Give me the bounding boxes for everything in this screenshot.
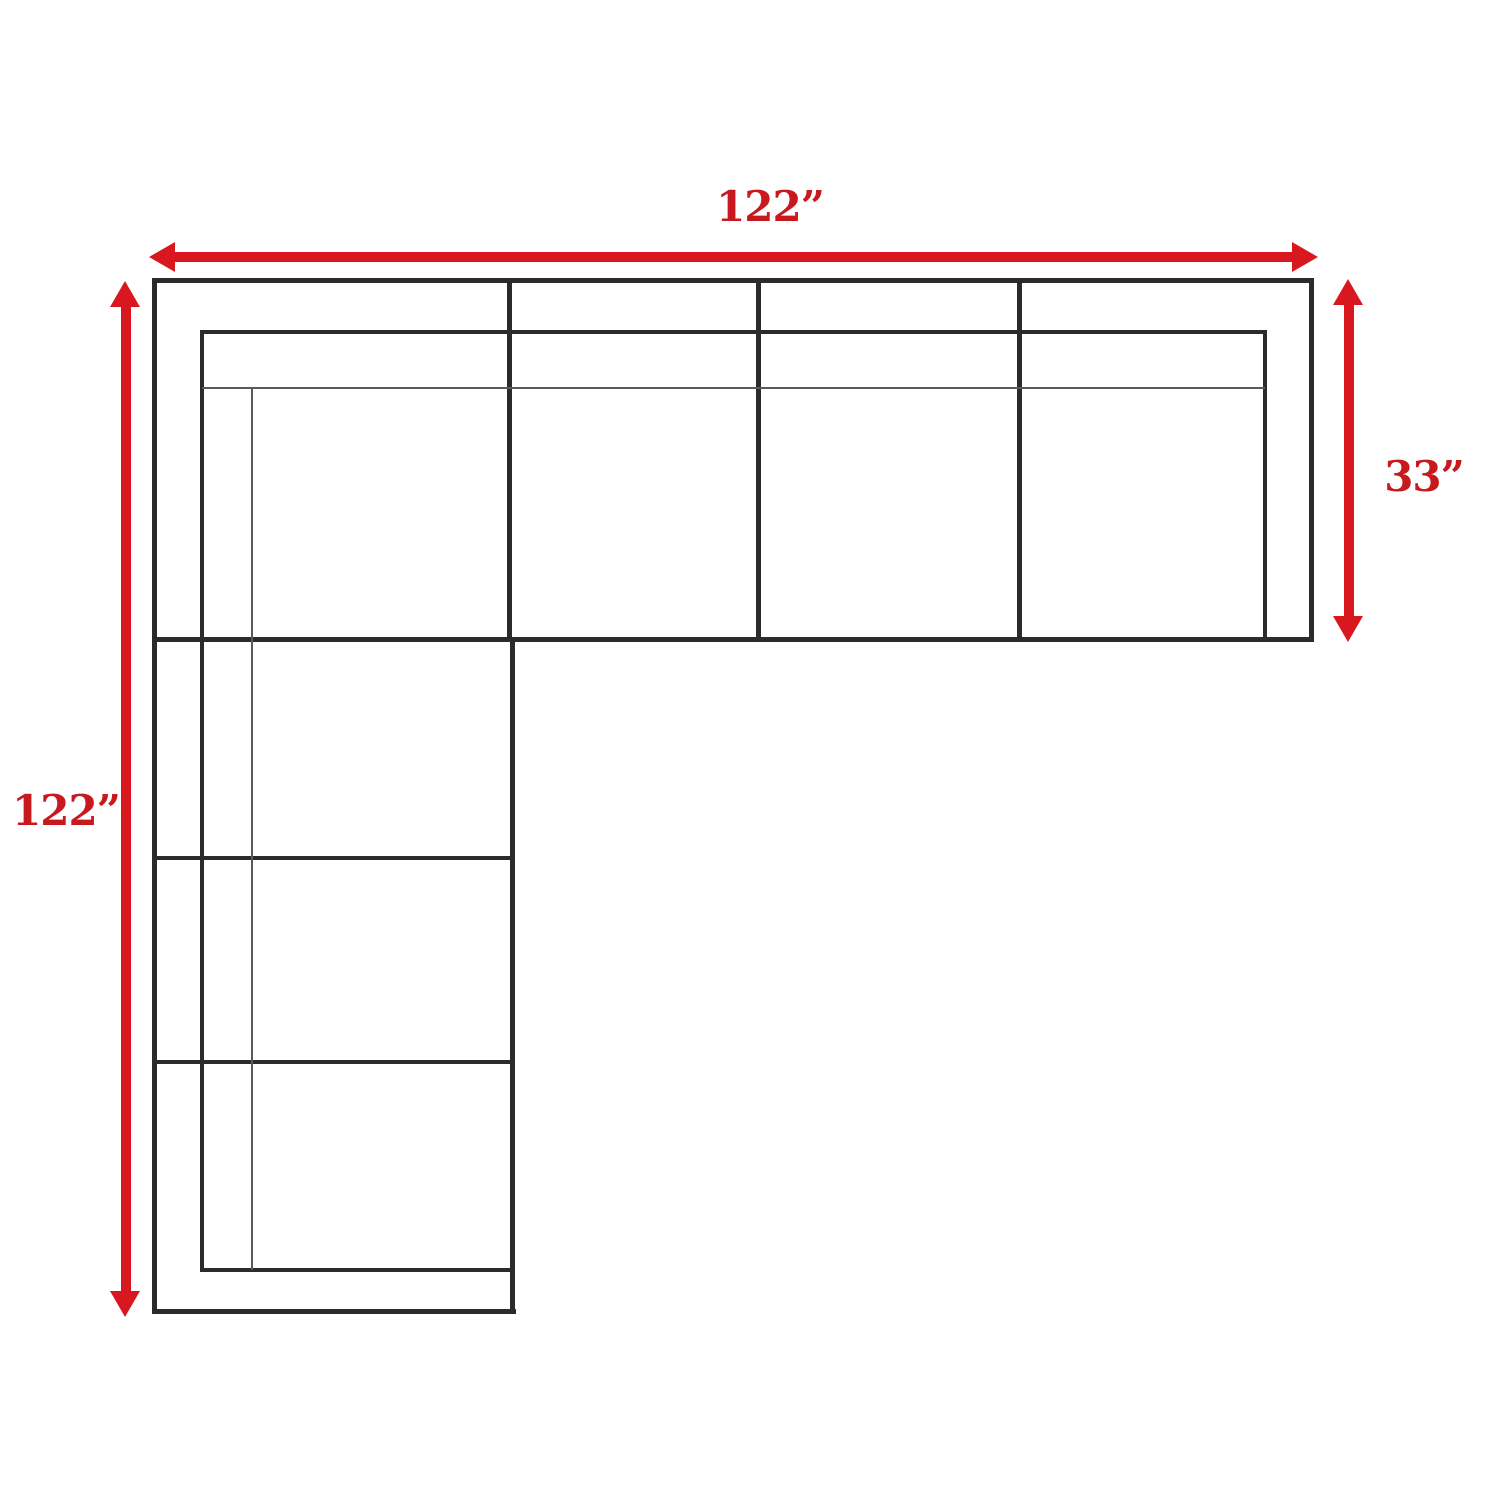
- outline-left-edge: [152, 278, 157, 1314]
- dimension-arrow-right: [1333, 279, 1364, 642]
- cushion-front-line-horizontal: [202, 387, 1265, 389]
- backrest-inner-left-line: [200, 330, 204, 1272]
- dimension-arrow-top: [149, 242, 1318, 273]
- outline-wing-right-edge: [510, 637, 515, 1314]
- arrow-shaft: [1344, 303, 1354, 618]
- outline-bottom-edge: [152, 1309, 516, 1314]
- seat-divider-line: [152, 856, 514, 860]
- cushion-front-line-vertical: [251, 387, 253, 1270]
- arrowhead-right-icon: [1292, 242, 1318, 272]
- dimension-label-right: 33”: [1378, 456, 1470, 498]
- arrowhead-up-icon: [1333, 279, 1363, 305]
- arrowhead-down-icon: [1333, 616, 1363, 642]
- dimension-label-top: 122”: [695, 186, 845, 228]
- armrest-inner-bottom-line: [200, 1268, 514, 1272]
- arrowhead-up-icon: [110, 281, 140, 307]
- sofa-dimension-diagram: 122” 122” 33”: [0, 0, 1500, 1500]
- arrowhead-left-icon: [149, 242, 175, 272]
- outline-top-edge: [152, 278, 1314, 283]
- outline-right-edge: [1309, 278, 1314, 642]
- dimension-label-left: 122”: [6, 790, 126, 832]
- arrowhead-down-icon: [110, 1291, 140, 1317]
- backrest-inner-top-line: [200, 330, 1267, 334]
- armrest-inner-right-line: [1263, 330, 1267, 641]
- seat-divider-line: [152, 1060, 514, 1064]
- arrow-shaft: [173, 252, 1294, 262]
- outline-front-edge: [152, 637, 1314, 642]
